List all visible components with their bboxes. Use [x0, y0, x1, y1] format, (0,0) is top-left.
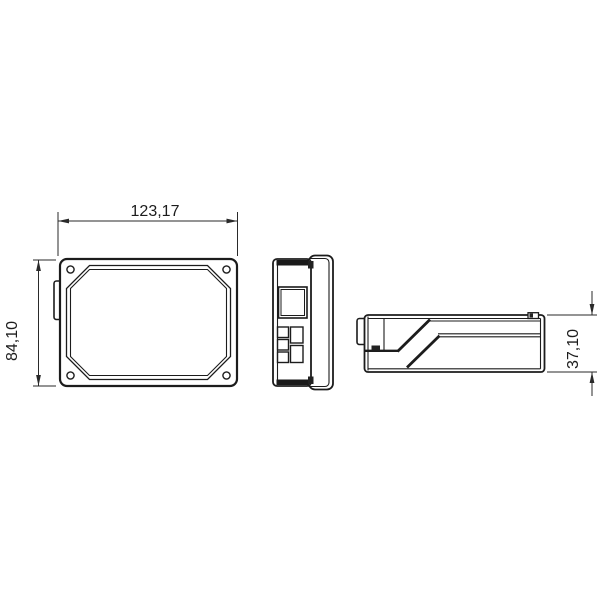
front-outer-outline [60, 259, 237, 386]
depth-dimension-label: 37,10 [565, 329, 582, 369]
depth-arrow-bottom [590, 372, 595, 383]
side-bottom-gasket [277, 380, 310, 386]
side-body-outline [273, 259, 311, 386]
side-lid-clip-top [308, 261, 314, 269]
dimension-width: 123,17 [58, 203, 238, 256]
width-arrow-right [227, 219, 238, 224]
depth-arrow-top [590, 304, 595, 315]
profile-clip-right-mark [530, 314, 534, 318]
side-view [273, 256, 333, 390]
width-arrow-left [58, 219, 69, 224]
technical-drawing: 123,17 84,10 37,10 [0, 0, 600, 600]
side-top-gasket [277, 260, 310, 266]
height-arrow-top [36, 260, 41, 271]
display-window-outer [279, 287, 308, 318]
profile-outer-outline [365, 315, 545, 372]
height-arrow-bottom [36, 375, 41, 386]
dimension-depth: 37,10 [547, 291, 597, 396]
height-dimension-label: 84,10 [4, 321, 21, 361]
side-lid-clip-bottom [308, 377, 314, 385]
profile-clip-left [372, 346, 381, 351]
width-dimension-label: 123,17 [131, 203, 180, 220]
dimension-height: 84,10 [4, 260, 56, 386]
drawing-canvas: 123,17 84,10 37,10 [0, 0, 600, 600]
profile-view [357, 313, 545, 372]
front-view [54, 259, 237, 386]
